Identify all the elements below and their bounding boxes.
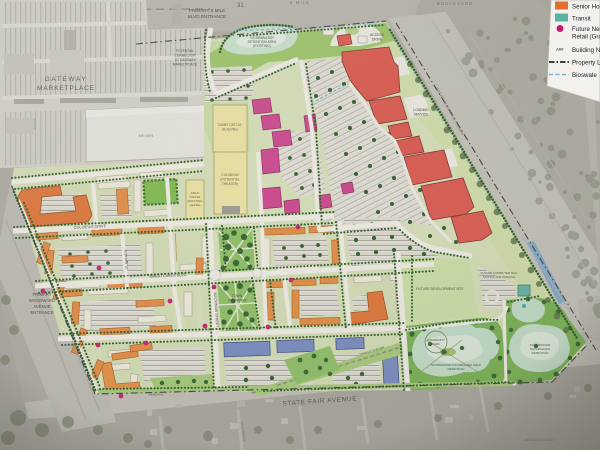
svg-text:Building N: Building N <box>572 47 600 54</box>
svg-text:Future Nei: Future Nei <box>572 26 600 33</box>
svg-text:Transit: Transit <box>572 16 591 23</box>
svg-text:Senior Hou: Senior Hou <box>572 4 600 11</box>
svg-text:Bioswale: Bioswale <box>572 72 597 79</box>
svg-text:Property L: Property L <box>572 60 600 67</box>
svg-text:A##: A## <box>556 47 564 52</box>
svg-text:Retail (Gro: Retail (Gro <box>572 34 600 41</box>
